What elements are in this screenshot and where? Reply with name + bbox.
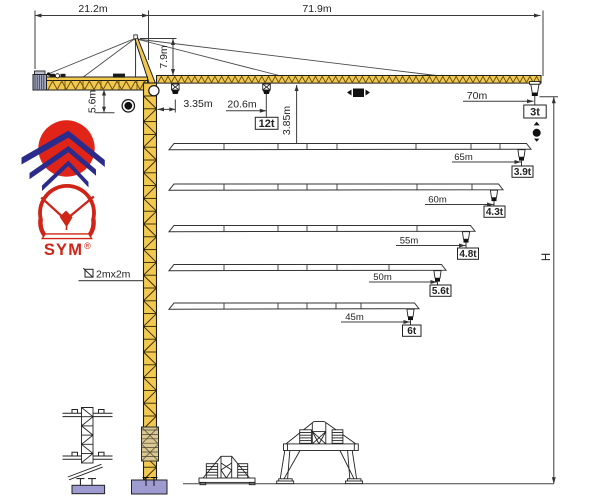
svg-text:20.6m: 20.6m [227, 99, 256, 111]
svg-text:70m: 70m [467, 90, 488, 102]
svg-text:12t: 12t [259, 118, 275, 130]
svg-text:50m: 50m [373, 272, 392, 283]
svg-text:65m: 65m [454, 152, 473, 163]
svg-text:60m: 60m [428, 194, 447, 205]
svg-text:®: ® [84, 241, 91, 251]
svg-text:2mx2m: 2mx2m [96, 268, 131, 280]
svg-text:3.85m: 3.85m [281, 106, 293, 135]
svg-text:45m: 45m [345, 312, 364, 323]
svg-text:7.9m: 7.9m [158, 45, 170, 69]
svg-text:71.9m: 71.9m [302, 3, 331, 15]
svg-text:H: H [541, 253, 553, 261]
svg-text:6t: 6t [407, 326, 417, 337]
svg-text:5.6m: 5.6m [87, 90, 99, 114]
svg-text:3t: 3t [530, 106, 540, 118]
svg-text:4.8t: 4.8t [459, 249, 477, 260]
svg-text:21.2m: 21.2m [78, 3, 107, 15]
svg-text:SYM: SYM [44, 241, 83, 259]
svg-text:3.35m: 3.35m [183, 98, 212, 110]
svg-text:4.3t: 4.3t [486, 207, 504, 218]
svg-text:5.6t: 5.6t [432, 286, 450, 297]
svg-text:55m: 55m [400, 235, 419, 246]
svg-text:3.9t: 3.9t [514, 167, 532, 178]
